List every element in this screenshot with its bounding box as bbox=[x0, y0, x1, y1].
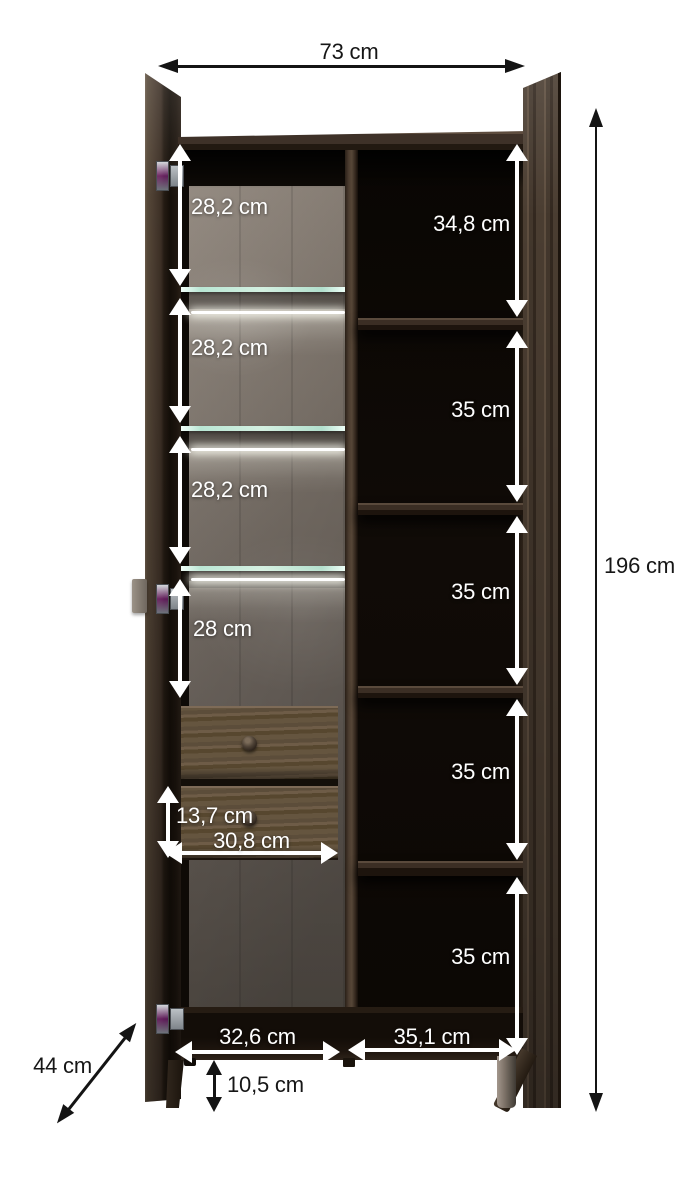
dim-overall-width-label: 73 cm bbox=[296, 41, 402, 63]
dim-depth-label: 44 cm bbox=[6, 1055, 92, 1077]
glass-shelf bbox=[181, 566, 345, 571]
shelf-edge bbox=[358, 861, 523, 876]
drawer-upper bbox=[181, 706, 338, 781]
shelf-edge bbox=[358, 318, 523, 330]
right-side-panel bbox=[523, 72, 561, 1108]
drawer-gap bbox=[181, 779, 338, 786]
dim-left-section-2-label: 28,2 cm bbox=[191, 337, 268, 359]
dim-left-section-4-label: 28 cm bbox=[193, 618, 252, 640]
panel-edge bbox=[558, 72, 561, 1108]
front-left-foot bbox=[166, 1060, 184, 1108]
cabinet-interior bbox=[181, 150, 523, 1060]
drawer-knob bbox=[242, 736, 257, 751]
dim-left-section-4-arrow bbox=[169, 579, 191, 698]
dim-right-section-4-label: 35 cm bbox=[390, 761, 510, 783]
dim-overall-height-label: 196 cm bbox=[604, 555, 675, 577]
furniture-dimension-diagram: 73 cm 196 cm 44 cm 10,5 cm 28,2 cm 28,2 … bbox=[0, 0, 700, 1183]
dim-right-section-2-label: 35 cm bbox=[390, 399, 510, 421]
dim-drawer-width-label: 30,8 cm bbox=[165, 830, 338, 852]
door-handle bbox=[132, 579, 147, 613]
center-divider bbox=[345, 150, 358, 1060]
dim-drawer-height-label: 13,7 cm bbox=[176, 805, 253, 827]
shelf-edge bbox=[358, 686, 523, 698]
cabinet-top-panel bbox=[178, 131, 528, 152]
dim-left-section-3-arrow bbox=[169, 436, 191, 564]
glass-shelf-shadow bbox=[189, 292, 345, 309]
glass-shelf bbox=[181, 426, 345, 431]
dim-left-section-2-arrow bbox=[169, 298, 191, 423]
right-shelf-column bbox=[358, 150, 523, 1060]
dim-foot-height-arrow bbox=[203, 1060, 225, 1112]
dim-right-section-1-label: 34,8 cm bbox=[390, 213, 510, 235]
dim-right-section-5-label: 35 cm bbox=[390, 946, 510, 968]
dim-overall-height-arrow bbox=[585, 108, 607, 1112]
glass-shelf-shadow bbox=[189, 431, 345, 448]
dim-bottom-right-width-label: 35,1 cm bbox=[348, 1026, 516, 1048]
dim-left-section-3-label: 28,2 cm bbox=[191, 479, 268, 501]
shelf-edge bbox=[358, 503, 523, 515]
dim-right-section-3-label: 35 cm bbox=[390, 581, 510, 603]
dim-left-section-1-arrow bbox=[169, 144, 191, 286]
glass-shelf bbox=[181, 287, 345, 292]
dim-foot-height-label: 10,5 cm bbox=[227, 1074, 304, 1096]
front-right-foot bbox=[497, 1056, 516, 1108]
dim-left-section-1-label: 28,2 cm bbox=[191, 196, 268, 218]
dim-bottom-left-width-label: 32,6 cm bbox=[175, 1026, 340, 1048]
